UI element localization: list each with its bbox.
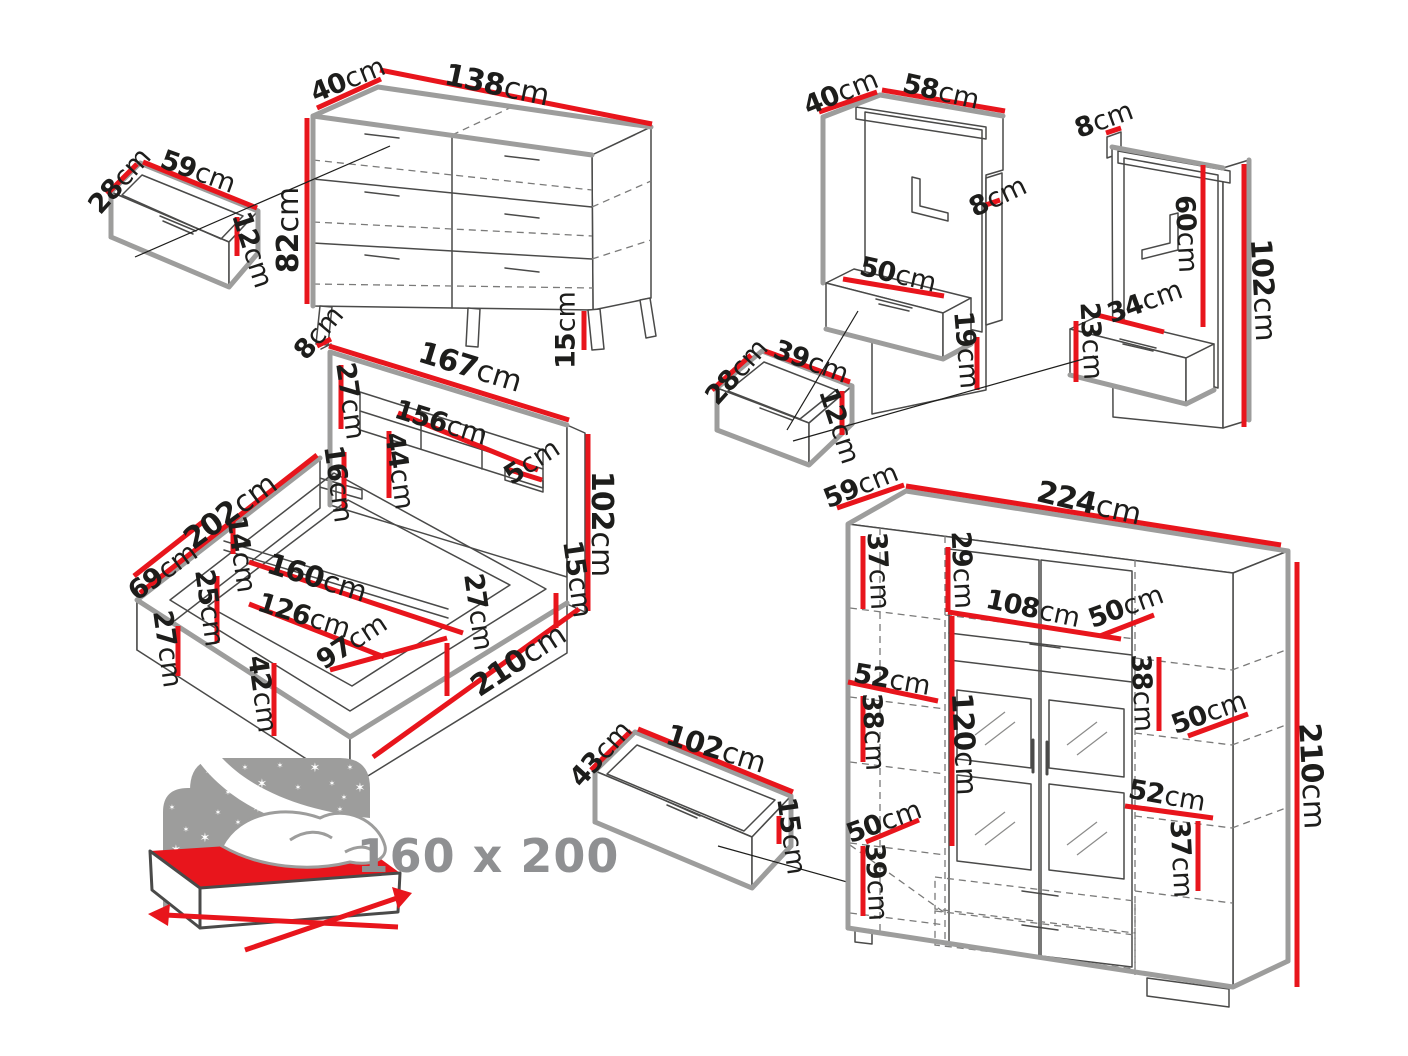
furniture-dimensions-diagram: ✶✶✶✶✶✶✶✶✶✶✶✶✶✶✶✶✶✶✶✶✶✶✶✶✶✶✶✶✶✶✶✶ xyxy=(0,0,1408,1056)
bed-size-label: 160 x 200 xyxy=(357,829,620,883)
chest-of-drawers-drawing xyxy=(307,70,656,350)
star-icon: ✶ xyxy=(242,763,249,772)
dimension-label-39cm: 39cm xyxy=(860,842,891,921)
dimension-label-210cm: 210cm xyxy=(1293,722,1329,830)
dimension-label-102cm: 102cm xyxy=(1246,238,1280,342)
star-icon: ✶ xyxy=(295,783,302,792)
star-icon: ✶ xyxy=(257,777,268,792)
star-icon: ✶ xyxy=(205,764,216,779)
dimension-label-29cm: 29cm xyxy=(946,530,977,609)
star-icon: ✶ xyxy=(169,803,176,812)
dimension-label-82cm: 82cm xyxy=(274,187,304,273)
dimension-label-38cm: 38cm xyxy=(1126,653,1157,732)
star-icon: ✶ xyxy=(329,779,336,788)
star-icon: ✶ xyxy=(215,808,222,817)
dimension-label-15cm: 15cm xyxy=(553,291,580,369)
dimension-label-37cm: 37cm xyxy=(1165,819,1196,898)
dimension-label-38cm: 38cm xyxy=(857,692,888,771)
star-icon: ✶ xyxy=(341,793,348,802)
star-icon: ✶ xyxy=(277,761,284,770)
star-icon: ✶ xyxy=(183,825,190,834)
star-icon: ✶ xyxy=(310,761,321,776)
dimension-label-120cm: 120cm xyxy=(947,692,981,796)
star-icon: ✶ xyxy=(200,831,211,846)
wall-panel-right-drawing xyxy=(1070,128,1249,428)
dimension-label-102cm: 102cm xyxy=(586,471,616,577)
star-icon: ✶ xyxy=(355,781,366,796)
dimension-label-19cm: 19cm xyxy=(949,310,983,390)
wardrobe-drawing xyxy=(837,485,1297,1007)
dimension-label-23cm: 23cm xyxy=(1075,301,1106,380)
star-icon: ✶ xyxy=(225,788,232,797)
star-icon: ✶ xyxy=(347,763,354,772)
dimension-label-60cm: 60cm xyxy=(1170,194,1201,273)
dimension-label-37cm: 37cm xyxy=(862,531,893,610)
